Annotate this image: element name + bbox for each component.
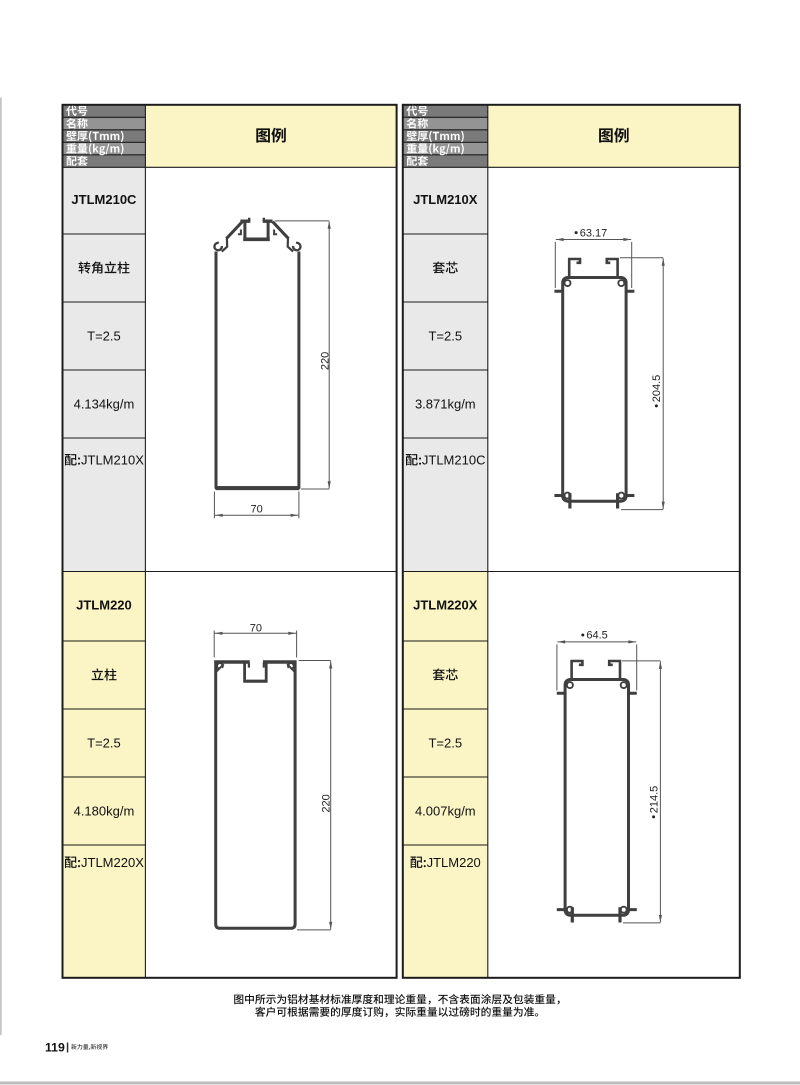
svg-text:70: 70 (250, 622, 262, 634)
svg-text:3.871kg/m: 3.871kg/m (415, 397, 476, 412)
svg-text:4.134kg/m: 4.134kg/m (74, 397, 135, 412)
svg-text:JTLM210X: JTLM210X (413, 192, 478, 207)
svg-text:JTLM210C: JTLM210C (422, 453, 486, 468)
svg-text:JTLM220: JTLM220 (76, 598, 132, 613)
svg-text:63.17: 63.17 (580, 227, 608, 239)
svg-text:T=2.5: T=2.5 (87, 329, 121, 344)
svg-text:64.5: 64.5 (586, 630, 607, 642)
svg-text:119: 119 (45, 1040, 65, 1054)
svg-text:JTLM210X: JTLM210X (81, 453, 144, 468)
svg-text:70: 70 (250, 503, 262, 515)
svg-text:4.007kg/m: 4.007kg/m (415, 804, 476, 819)
svg-text:220: 220 (319, 352, 331, 370)
svg-text:T=2.5: T=2.5 (87, 736, 121, 751)
svg-text:214.5: 214.5 (648, 786, 660, 814)
svg-text:JTLM220X: JTLM220X (81, 855, 144, 870)
svg-text:4.180kg/m: 4.180kg/m (74, 804, 135, 819)
svg-text:JTLM220: JTLM220 (427, 855, 481, 870)
svg-text:204.5: 204.5 (651, 375, 663, 403)
svg-text:T=2.5: T=2.5 (428, 736, 462, 751)
svg-text:T=2.5: T=2.5 (428, 329, 462, 344)
svg-text:220: 220 (321, 794, 333, 812)
svg-text:JTLM210C: JTLM210C (71, 192, 137, 207)
svg-text:JTLM220X: JTLM220X (413, 598, 478, 613)
